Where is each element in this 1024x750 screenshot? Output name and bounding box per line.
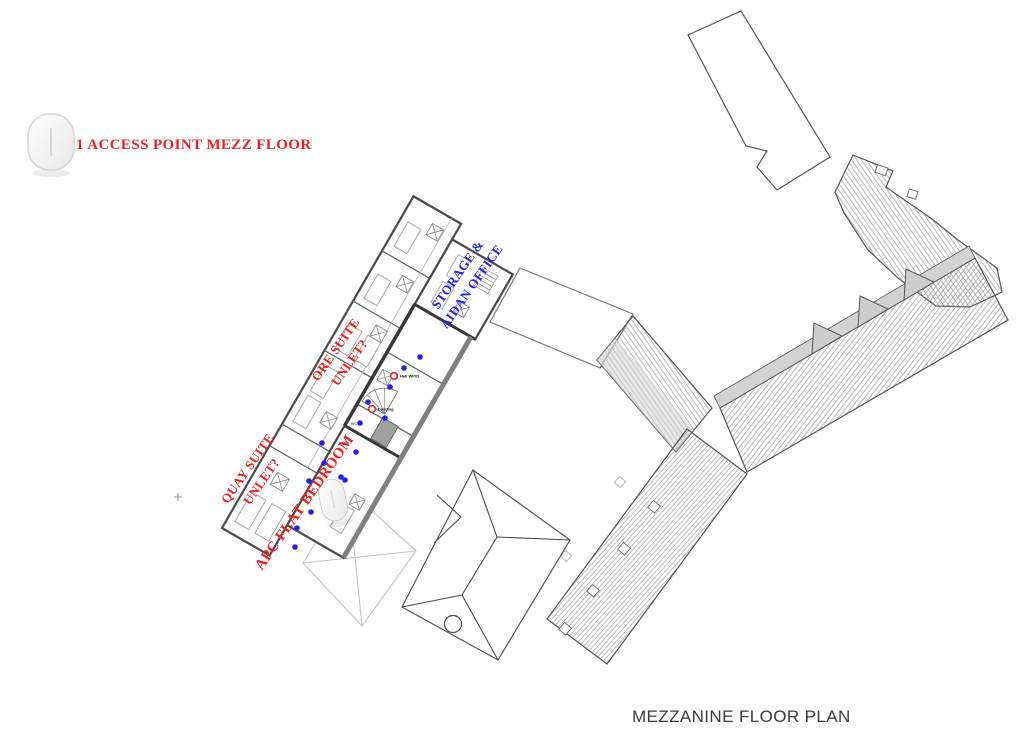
survey-cross bbox=[174, 493, 182, 501]
wifi-dot bbox=[382, 415, 388, 421]
outlined-building-top-right bbox=[688, 11, 830, 190]
floor-plan-page: Hall WP02Landing WCLobby 1 ACCESS POINT … bbox=[0, 0, 1024, 750]
room-note: WC bbox=[351, 422, 357, 426]
roof-band-upper bbox=[720, 258, 1008, 472]
floor-plan-canvas: Hall WP02Landing WCLobby 1 ACCESS POINT … bbox=[0, 0, 1024, 750]
chimney bbox=[907, 189, 918, 199]
wifi-dot bbox=[353, 449, 359, 455]
access-point-icon bbox=[28, 114, 74, 177]
access-point-marker-label: Hall WP02 bbox=[400, 374, 420, 379]
access-point-marker bbox=[369, 406, 376, 413]
wifi-dot bbox=[357, 420, 363, 426]
wifi-dot bbox=[417, 354, 423, 360]
roofscape bbox=[174, 11, 1008, 664]
wifi-dot bbox=[319, 440, 325, 446]
wifi-dot bbox=[338, 474, 344, 480]
roof-turret bbox=[445, 616, 462, 633]
wifi-dot bbox=[401, 365, 407, 371]
wifi-dot bbox=[292, 544, 298, 550]
access-point-marker bbox=[391, 373, 398, 380]
wifi-dot bbox=[387, 384, 393, 390]
legend-label: 1 ACCESS POINT MEZZ FLOOR bbox=[76, 137, 312, 153]
roof-band-lower bbox=[547, 429, 747, 664]
legend: 1 ACCESS POINT MEZZ FLOOR bbox=[28, 114, 312, 177]
hip-roof-house bbox=[402, 470, 570, 660]
access-point-marker-label: Landing bbox=[378, 407, 394, 412]
rooflight bbox=[614, 476, 625, 487]
plan-title: MEZZANINE FLOOR PLAN bbox=[632, 707, 851, 726]
wifi-dot bbox=[365, 399, 371, 405]
